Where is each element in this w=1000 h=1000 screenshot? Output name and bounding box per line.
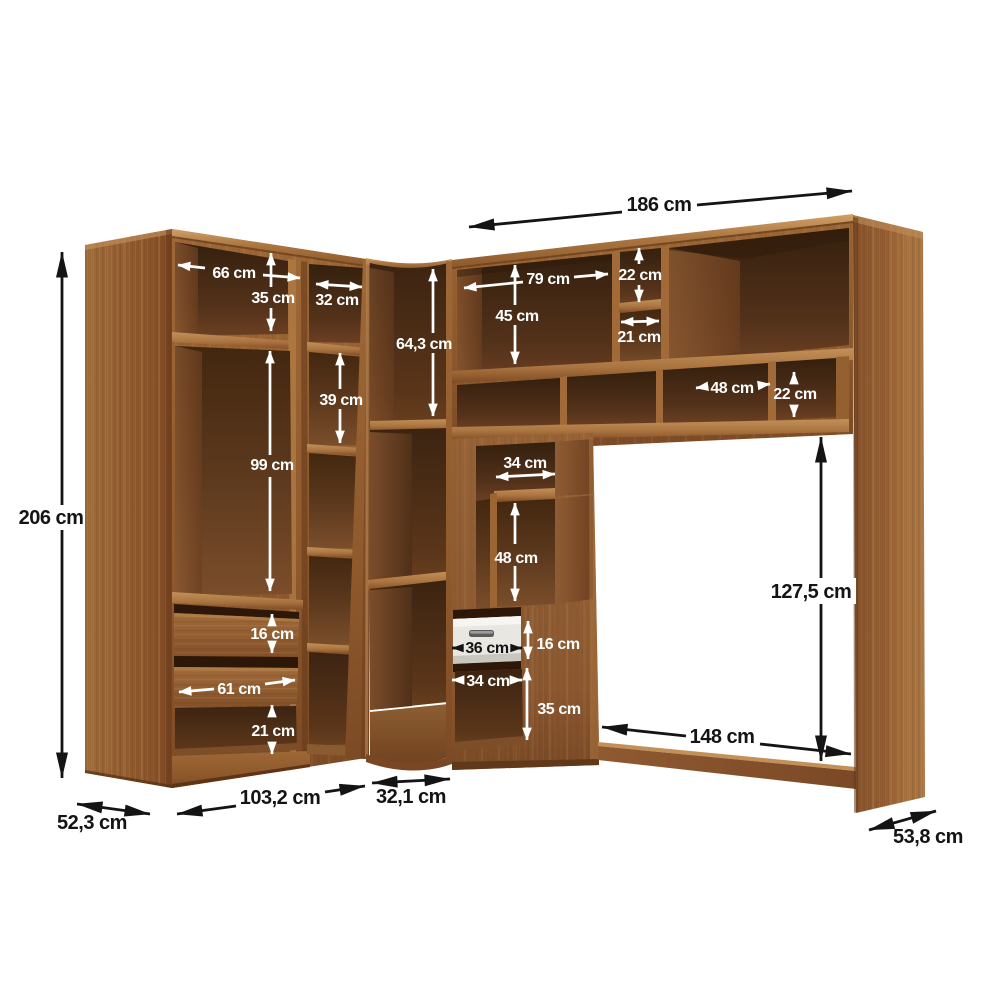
svg-text:79 cm: 79 cm [526,271,570,288]
svg-text:16 cm: 16 cm [250,626,294,643]
svg-text:21 cm: 21 cm [251,723,295,740]
svg-text:148 cm: 148 cm [690,726,755,748]
svg-text:127,5 cm: 127,5 cm [771,581,852,603]
svg-text:22 cm: 22 cm [773,386,817,403]
svg-text:22 cm: 22 cm [618,267,662,284]
svg-text:53,8 cm: 53,8 cm [893,826,963,848]
svg-text:99 cm: 99 cm [250,457,294,474]
svg-text:45 cm: 45 cm [495,308,539,325]
svg-text:206 cm: 206 cm [19,507,84,529]
svg-text:16 cm: 16 cm [536,636,580,653]
svg-text:39 cm: 39 cm [319,392,363,409]
svg-text:34 cm: 34 cm [466,673,510,690]
svg-text:48 cm: 48 cm [710,380,754,397]
svg-text:21 cm: 21 cm [617,329,661,346]
svg-text:66 cm: 66 cm [212,265,256,282]
svg-text:32,1 cm: 32,1 cm [376,786,446,808]
svg-text:34 cm: 34 cm [503,455,547,472]
svg-text:48 cm: 48 cm [494,550,538,567]
svg-text:35 cm: 35 cm [251,290,295,307]
svg-text:64,3 cm: 64,3 cm [396,336,452,353]
svg-text:32 cm: 32 cm [315,292,359,309]
svg-text:61 cm: 61 cm [217,681,261,698]
svg-text:186 cm: 186 cm [627,194,692,216]
svg-text:103,2 cm: 103,2 cm [240,787,321,809]
svg-text:52,3 cm: 52,3 cm [57,812,127,834]
svg-text:35 cm: 35 cm [537,701,581,718]
svg-text:36 cm: 36 cm [465,640,509,657]
